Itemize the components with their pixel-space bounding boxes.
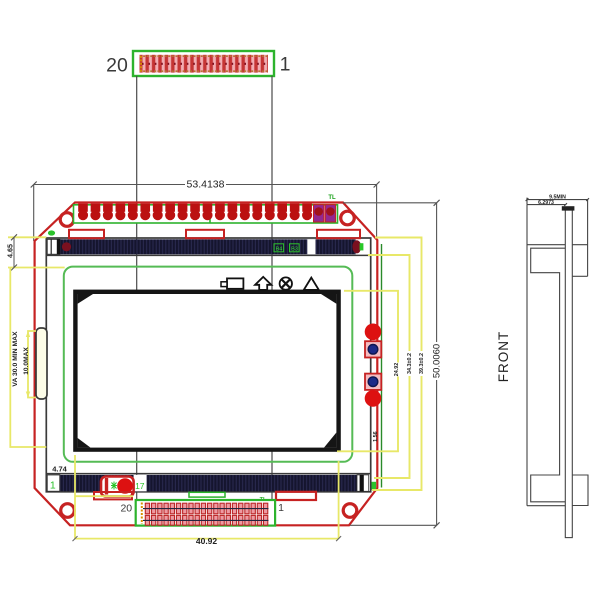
- svg-text:TL: TL: [328, 195, 336, 201]
- svg-text:1: 1: [50, 480, 56, 492]
- svg-text:VA 30.0 MIN MAX: VA 30.0 MIN MAX: [12, 331, 19, 387]
- svg-text:4.65: 4.65: [6, 244, 15, 258]
- svg-text:20: 20: [120, 503, 132, 515]
- svg-text:FRONT: FRONT: [496, 331, 511, 383]
- svg-text:B4: B4: [276, 247, 283, 253]
- svg-text:20: 20: [106, 55, 128, 77]
- svg-text:24.92: 24.92: [394, 363, 400, 377]
- svg-text:1.56: 1.56: [373, 431, 379, 442]
- svg-text:17: 17: [135, 481, 145, 491]
- svg-text:39.3±0.2: 39.3±0.2: [419, 353, 425, 374]
- svg-text:6.2973: 6.2973: [538, 200, 554, 206]
- svg-text:B3: B3: [291, 247, 298, 253]
- svg-text:40.92: 40.92: [196, 536, 218, 546]
- svg-text:34.3±0.2: 34.3±0.2: [407, 353, 413, 374]
- svg-text:4.74: 4.74: [52, 465, 67, 474]
- svg-text:10.0MAX: 10.0MAX: [23, 347, 30, 375]
- svg-text:1: 1: [280, 54, 291, 76]
- svg-text:53.4138: 53.4138: [187, 178, 225, 190]
- svg-text:50.0060: 50.0060: [432, 344, 443, 378]
- svg-text:1: 1: [278, 502, 284, 514]
